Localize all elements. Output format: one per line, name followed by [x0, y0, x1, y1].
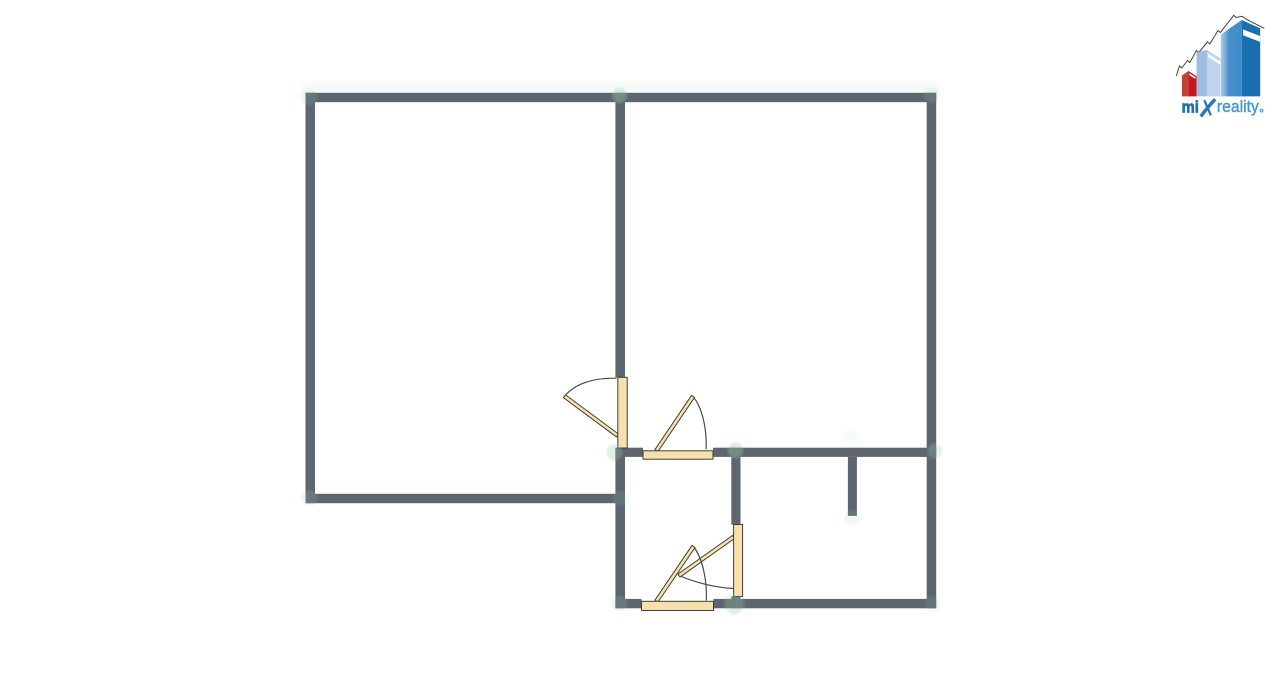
svg-text:mi: mi [1182, 97, 1199, 116]
svg-text:reality: reality [1217, 97, 1259, 116]
